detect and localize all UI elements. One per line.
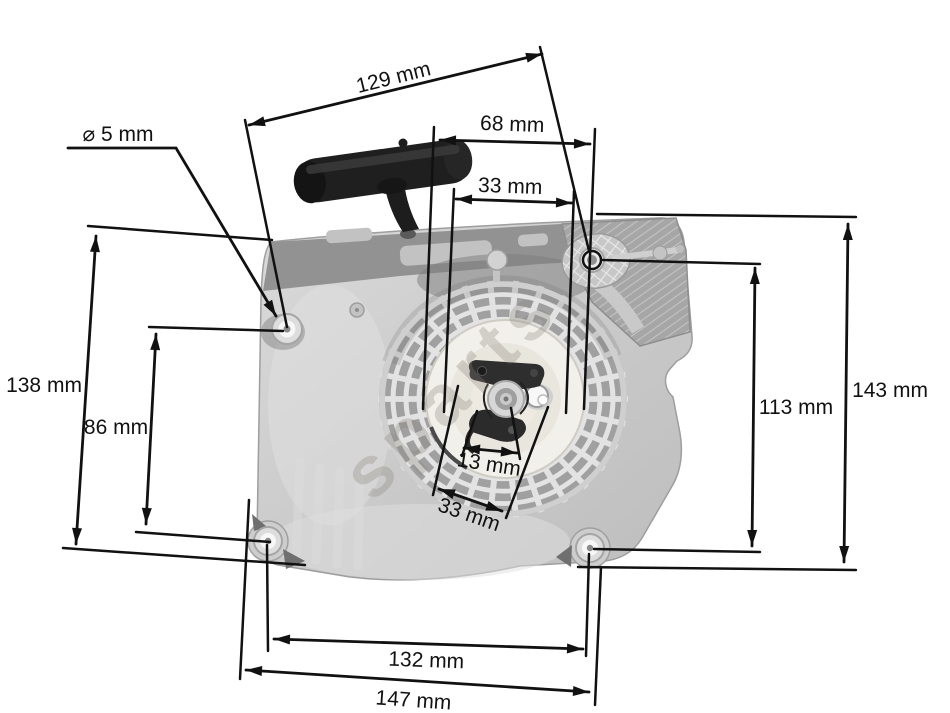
dim-label-33mm-top: 33 mm <box>478 174 543 199</box>
guide-rod-end <box>676 245 684 253</box>
dim-label-68mm: 68 mm <box>480 112 545 137</box>
dim-label-143mm: 143 mm <box>852 379 928 402</box>
center-bolt-dot <box>504 397 509 402</box>
pawl-screw-right <box>530 369 538 377</box>
dim-label-132mm: 132 mm <box>388 648 465 674</box>
dim-label-138mm: 138 mm <box>6 374 82 397</box>
dim-label-147mm: 147 mm <box>375 686 452 713</box>
spring-coil-2 <box>538 395 548 405</box>
starter-dimension-diagram: sparts <box>0 0 950 713</box>
guide-rod-ball <box>653 246 667 260</box>
dim-label-86mm: 86 mm <box>84 416 148 439</box>
starter-handle <box>291 137 475 232</box>
dim-label-113mm: 113 mm <box>759 396 833 419</box>
dim-label-dia5mm: ⌀ 5 mm <box>83 123 154 146</box>
face-pin-hole <box>350 303 364 317</box>
diagram-svg: sparts <box>0 0 950 713</box>
dim-label-129mm: 129 mm <box>354 57 433 98</box>
